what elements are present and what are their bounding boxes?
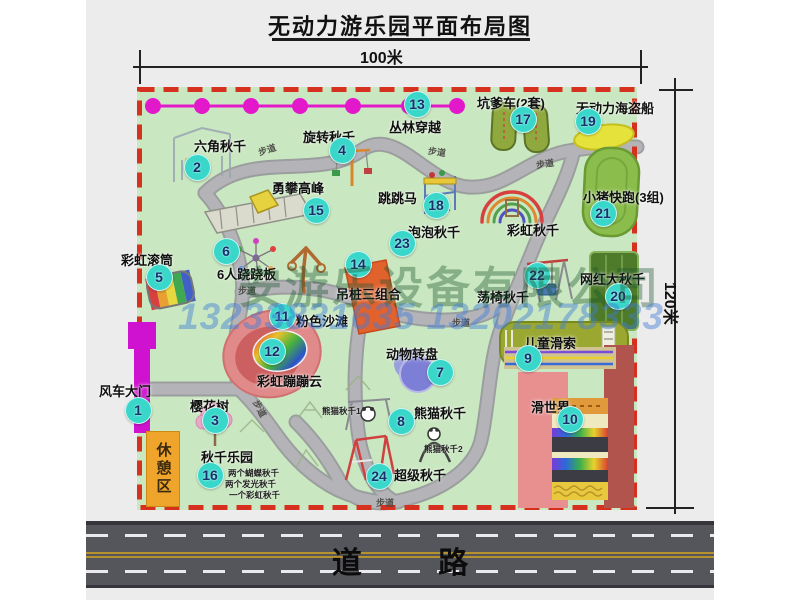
attraction-marker-17: 17 <box>510 106 537 133</box>
attraction-label-15: 勇攀高峰 <box>272 178 324 197</box>
road-label: 道 路 <box>86 538 714 582</box>
attraction-marker-13: 13 <box>404 91 431 118</box>
sub-label: 熊猫秋千1 <box>322 405 361 417</box>
attraction-label-2: 六角秋千 <box>194 136 246 155</box>
attraction-marker-8: 8 <box>388 408 415 435</box>
rest-area-label: 休憩区 <box>153 442 174 496</box>
watermark-phone-numbers: 13233831635 13202178333 <box>178 296 664 338</box>
attraction-marker-4: 4 <box>329 137 356 164</box>
attraction-marker-3: 3 <box>202 407 229 434</box>
attraction-marker-12: 12 <box>259 338 286 365</box>
attraction-label-12: 彩虹蹦蹦云 <box>257 371 322 390</box>
walkway-label: 步道 <box>427 144 447 159</box>
road-lane-dash-top <box>86 534 714 537</box>
attraction-label-13: 丛林穿越 <box>389 117 441 136</box>
attraction-marker-5: 5 <box>146 264 173 291</box>
attraction-marker-19: 19 <box>575 108 602 135</box>
rest-area: 休憩区 <box>146 431 180 507</box>
road-top-edge <box>86 521 714 525</box>
sub-label: 熊猫秋千2 <box>424 443 463 455</box>
attraction-label-7: 动物转盘 <box>386 344 438 363</box>
attraction-marker-24: 24 <box>366 463 393 490</box>
attraction-label-8: 熊猫秋千 <box>414 403 466 422</box>
road-bottom-edge <box>86 585 714 588</box>
walkway-label: 步道 <box>376 496 394 509</box>
attraction-marker-10: 10 <box>557 406 584 433</box>
attraction-label-24: 超级秋千 <box>394 465 446 484</box>
attraction-marker-18: 18 <box>423 192 450 219</box>
page-title: 无动力游乐园平面布局图 <box>0 9 800 41</box>
attraction-label-23: 泡泡秋千 <box>408 222 460 241</box>
attraction-marker-1: 1 <box>125 397 152 424</box>
sub-label: 一个彩虹秋千 <box>229 489 280 501</box>
attraction-label-17: 坑爹车(2套) <box>477 93 545 112</box>
dimension-width-label: 100米 <box>360 44 403 68</box>
attraction-marker-15: 15 <box>303 197 330 224</box>
attraction-label-18: 跳跳马 <box>378 188 417 207</box>
road: 道 路 <box>86 521 714 588</box>
attraction-marker-7: 7 <box>427 359 454 386</box>
attraction-marker-9: 9 <box>515 345 542 372</box>
park-layout-map: 无动力游乐园平面布局图 100米 120米 休憩区 安游乐设备有限公司 1323… <box>0 0 800 600</box>
attraction-marker-6: 6 <box>213 238 240 265</box>
walkway-label: 步道 <box>535 156 555 171</box>
attraction-marker-16: 16 <box>197 462 224 489</box>
attraction-label-rainbow-swing: 彩虹秋千 <box>507 220 559 239</box>
attraction-marker-2: 2 <box>184 154 211 181</box>
title-underline <box>272 38 530 41</box>
attraction-marker-21: 21 <box>590 200 617 227</box>
